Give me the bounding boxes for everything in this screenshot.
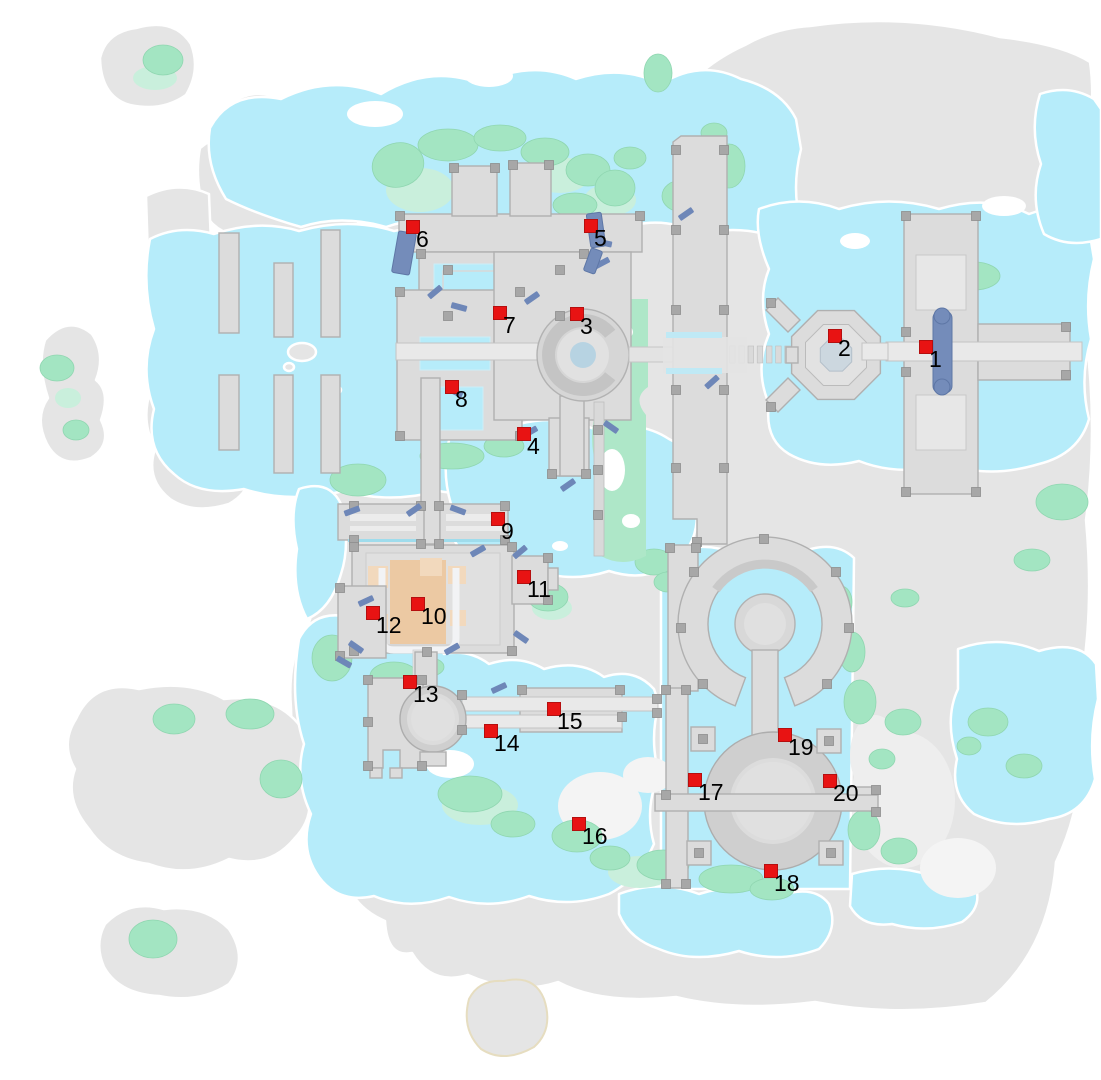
map-marker-label-18: 18 xyxy=(774,870,800,896)
structure-node xyxy=(720,226,729,235)
structure-node xyxy=(396,288,405,297)
structure-node xyxy=(556,312,565,321)
structure-node xyxy=(616,686,625,695)
map-marker-label-4: 4 xyxy=(527,433,540,459)
map-marker-label-19: 19 xyxy=(788,734,814,760)
structure-node xyxy=(417,540,426,549)
map-marker-label-14: 14 xyxy=(494,730,520,756)
structure-node xyxy=(672,146,681,155)
structure-node xyxy=(672,226,681,235)
structure-node xyxy=(594,511,603,520)
structure-node xyxy=(832,568,841,577)
structure-node xyxy=(435,502,444,511)
structure-node xyxy=(350,543,359,552)
structure-node xyxy=(682,880,691,889)
structure-node xyxy=(653,709,662,718)
world-map[interactable]: 1234567891011121314151617181920 xyxy=(0,0,1101,1080)
structure-node xyxy=(902,328,911,337)
structure-node xyxy=(450,164,459,173)
map-marker-label-9: 9 xyxy=(501,518,514,544)
map-marker-label-5: 5 xyxy=(594,225,607,251)
map-marker-label-3: 3 xyxy=(580,313,593,339)
structure-node xyxy=(418,762,427,771)
structure-node xyxy=(720,386,729,395)
structure-node xyxy=(902,368,911,377)
structure-node xyxy=(972,488,981,497)
structure-node xyxy=(672,306,681,315)
structure-node xyxy=(364,676,373,685)
structure-node xyxy=(636,212,645,221)
structure-node xyxy=(672,386,681,395)
structure-node xyxy=(972,212,981,221)
structure-node xyxy=(662,791,671,800)
map-marker-label-20: 20 xyxy=(833,780,859,806)
structure-node xyxy=(508,647,517,656)
structure-node xyxy=(458,691,467,700)
structure-node xyxy=(872,808,881,817)
structure-node xyxy=(396,212,405,221)
structure-node xyxy=(767,403,776,412)
structure-node xyxy=(692,544,701,553)
map-marker-label-15: 15 xyxy=(557,708,583,734)
map-marker-label-17: 17 xyxy=(698,779,724,805)
map-marker-label-2: 2 xyxy=(838,335,851,361)
structure-node xyxy=(677,624,686,633)
structure-node xyxy=(720,146,729,155)
structure-node xyxy=(594,466,603,475)
map-marker-label-6: 6 xyxy=(416,226,429,252)
map-marker-label-11: 11 xyxy=(527,576,551,602)
structure-node xyxy=(501,502,510,511)
structure-node xyxy=(580,250,589,259)
structure-node xyxy=(672,464,681,473)
structure-node xyxy=(544,554,553,563)
structure-node xyxy=(336,584,345,593)
structure-node xyxy=(1062,371,1071,380)
structure-node xyxy=(545,161,554,170)
structure-node xyxy=(666,544,675,553)
structure-node xyxy=(845,624,854,633)
structure-node xyxy=(396,432,405,441)
structure-node xyxy=(902,212,911,221)
structure-node xyxy=(720,464,729,473)
structure-node xyxy=(594,426,603,435)
map-marker-label-13: 13 xyxy=(413,681,439,707)
map-marker-label-7: 7 xyxy=(503,312,516,338)
structure-node xyxy=(662,880,671,889)
map-marker-label-12: 12 xyxy=(376,612,402,638)
structure-node xyxy=(444,312,453,321)
structure-node xyxy=(662,686,671,695)
map-marker-label-1: 1 xyxy=(929,346,942,372)
structure-node xyxy=(435,540,444,549)
structure-node xyxy=(458,726,467,735)
structure-node xyxy=(653,695,662,704)
structure-node xyxy=(720,306,729,315)
structure-node xyxy=(767,299,776,308)
structure-node xyxy=(491,164,500,173)
structure-node xyxy=(556,266,565,275)
structure-node xyxy=(364,718,373,727)
structure-node xyxy=(1062,323,1071,332)
structure-node xyxy=(682,686,691,695)
plaza-center xyxy=(570,342,596,368)
structure-node xyxy=(902,488,911,497)
structure-node xyxy=(518,686,527,695)
structure-node xyxy=(823,680,832,689)
structure-node xyxy=(509,161,518,170)
structure-node xyxy=(548,470,557,479)
structure-node xyxy=(516,288,525,297)
structure-node xyxy=(444,266,453,275)
map-marker-label-8: 8 xyxy=(455,386,468,412)
structure-node xyxy=(872,786,881,795)
structure-node xyxy=(760,535,769,544)
structure-node xyxy=(618,713,627,722)
structure-node xyxy=(364,762,373,771)
structure-node xyxy=(699,680,708,689)
structure-node xyxy=(423,648,432,657)
map-marker-label-10: 10 xyxy=(421,603,447,629)
map-marker-label-16: 16 xyxy=(582,823,608,849)
structure-node xyxy=(582,470,591,479)
structure-node xyxy=(690,568,699,577)
